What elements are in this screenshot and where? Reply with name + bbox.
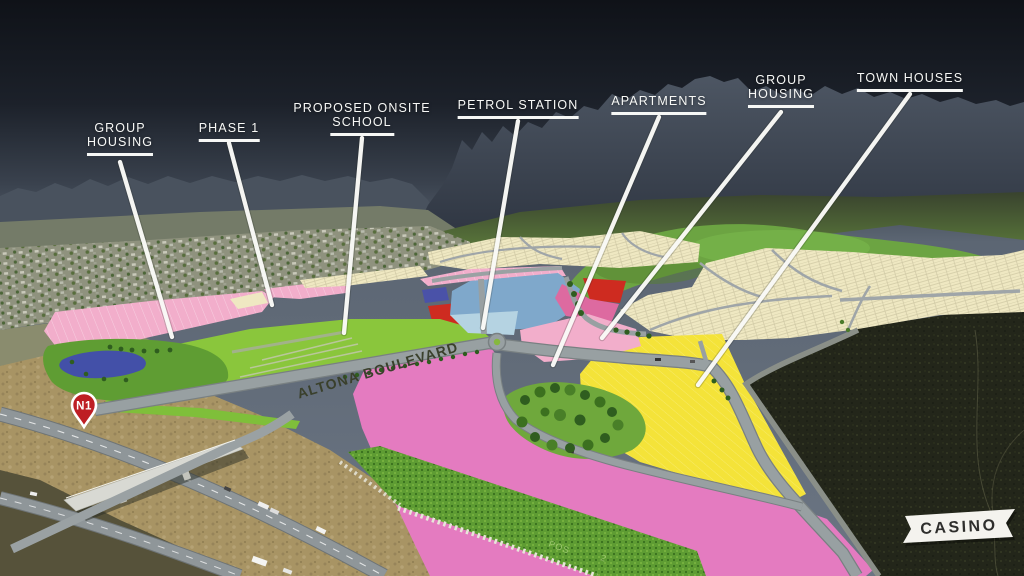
callout-text: PHASE 1 (199, 121, 260, 135)
callout-text: HOUSING (87, 135, 153, 149)
callout-text: GROUP (87, 121, 153, 135)
callout-underline (87, 153, 153, 156)
callout-proposed-onsite-school: PROPOSED ONSITESCHOOL (293, 101, 430, 136)
callout-phase-1: PHASE 1 (199, 121, 260, 142)
callout-underline (611, 112, 706, 115)
callout-town-houses: TOWN HOUSES (857, 71, 963, 92)
callout-text: TOWN HOUSES (857, 71, 963, 85)
callout-underline (330, 133, 394, 136)
callout-text: APARTMENTS (611, 94, 706, 108)
callout-petrol-station: PETROL STATION (458, 98, 579, 119)
callout-group-housing-east: GROUPHOUSING (748, 73, 814, 108)
callout-underline (748, 105, 814, 108)
callout-text: SCHOOL (293, 115, 430, 129)
callout-text: GROUP (748, 73, 814, 87)
callout-text: PETROL STATION (458, 98, 579, 112)
n1-route-pin-label: N1 (76, 401, 92, 413)
development-aerial-map: POS 2 ALTONA BOULEVARD N1 CASINO GROUPHO… (0, 0, 1024, 576)
callout-text: PROPOSED ONSITE (293, 101, 430, 115)
callout-underline (458, 116, 579, 119)
callout-underline (857, 89, 963, 92)
callout-underline (199, 139, 260, 142)
callout-text: HOUSING (748, 87, 814, 101)
callout-apartments: APARTMENTS (611, 94, 706, 115)
callout-group-housing-west: GROUPHOUSING (87, 121, 153, 156)
